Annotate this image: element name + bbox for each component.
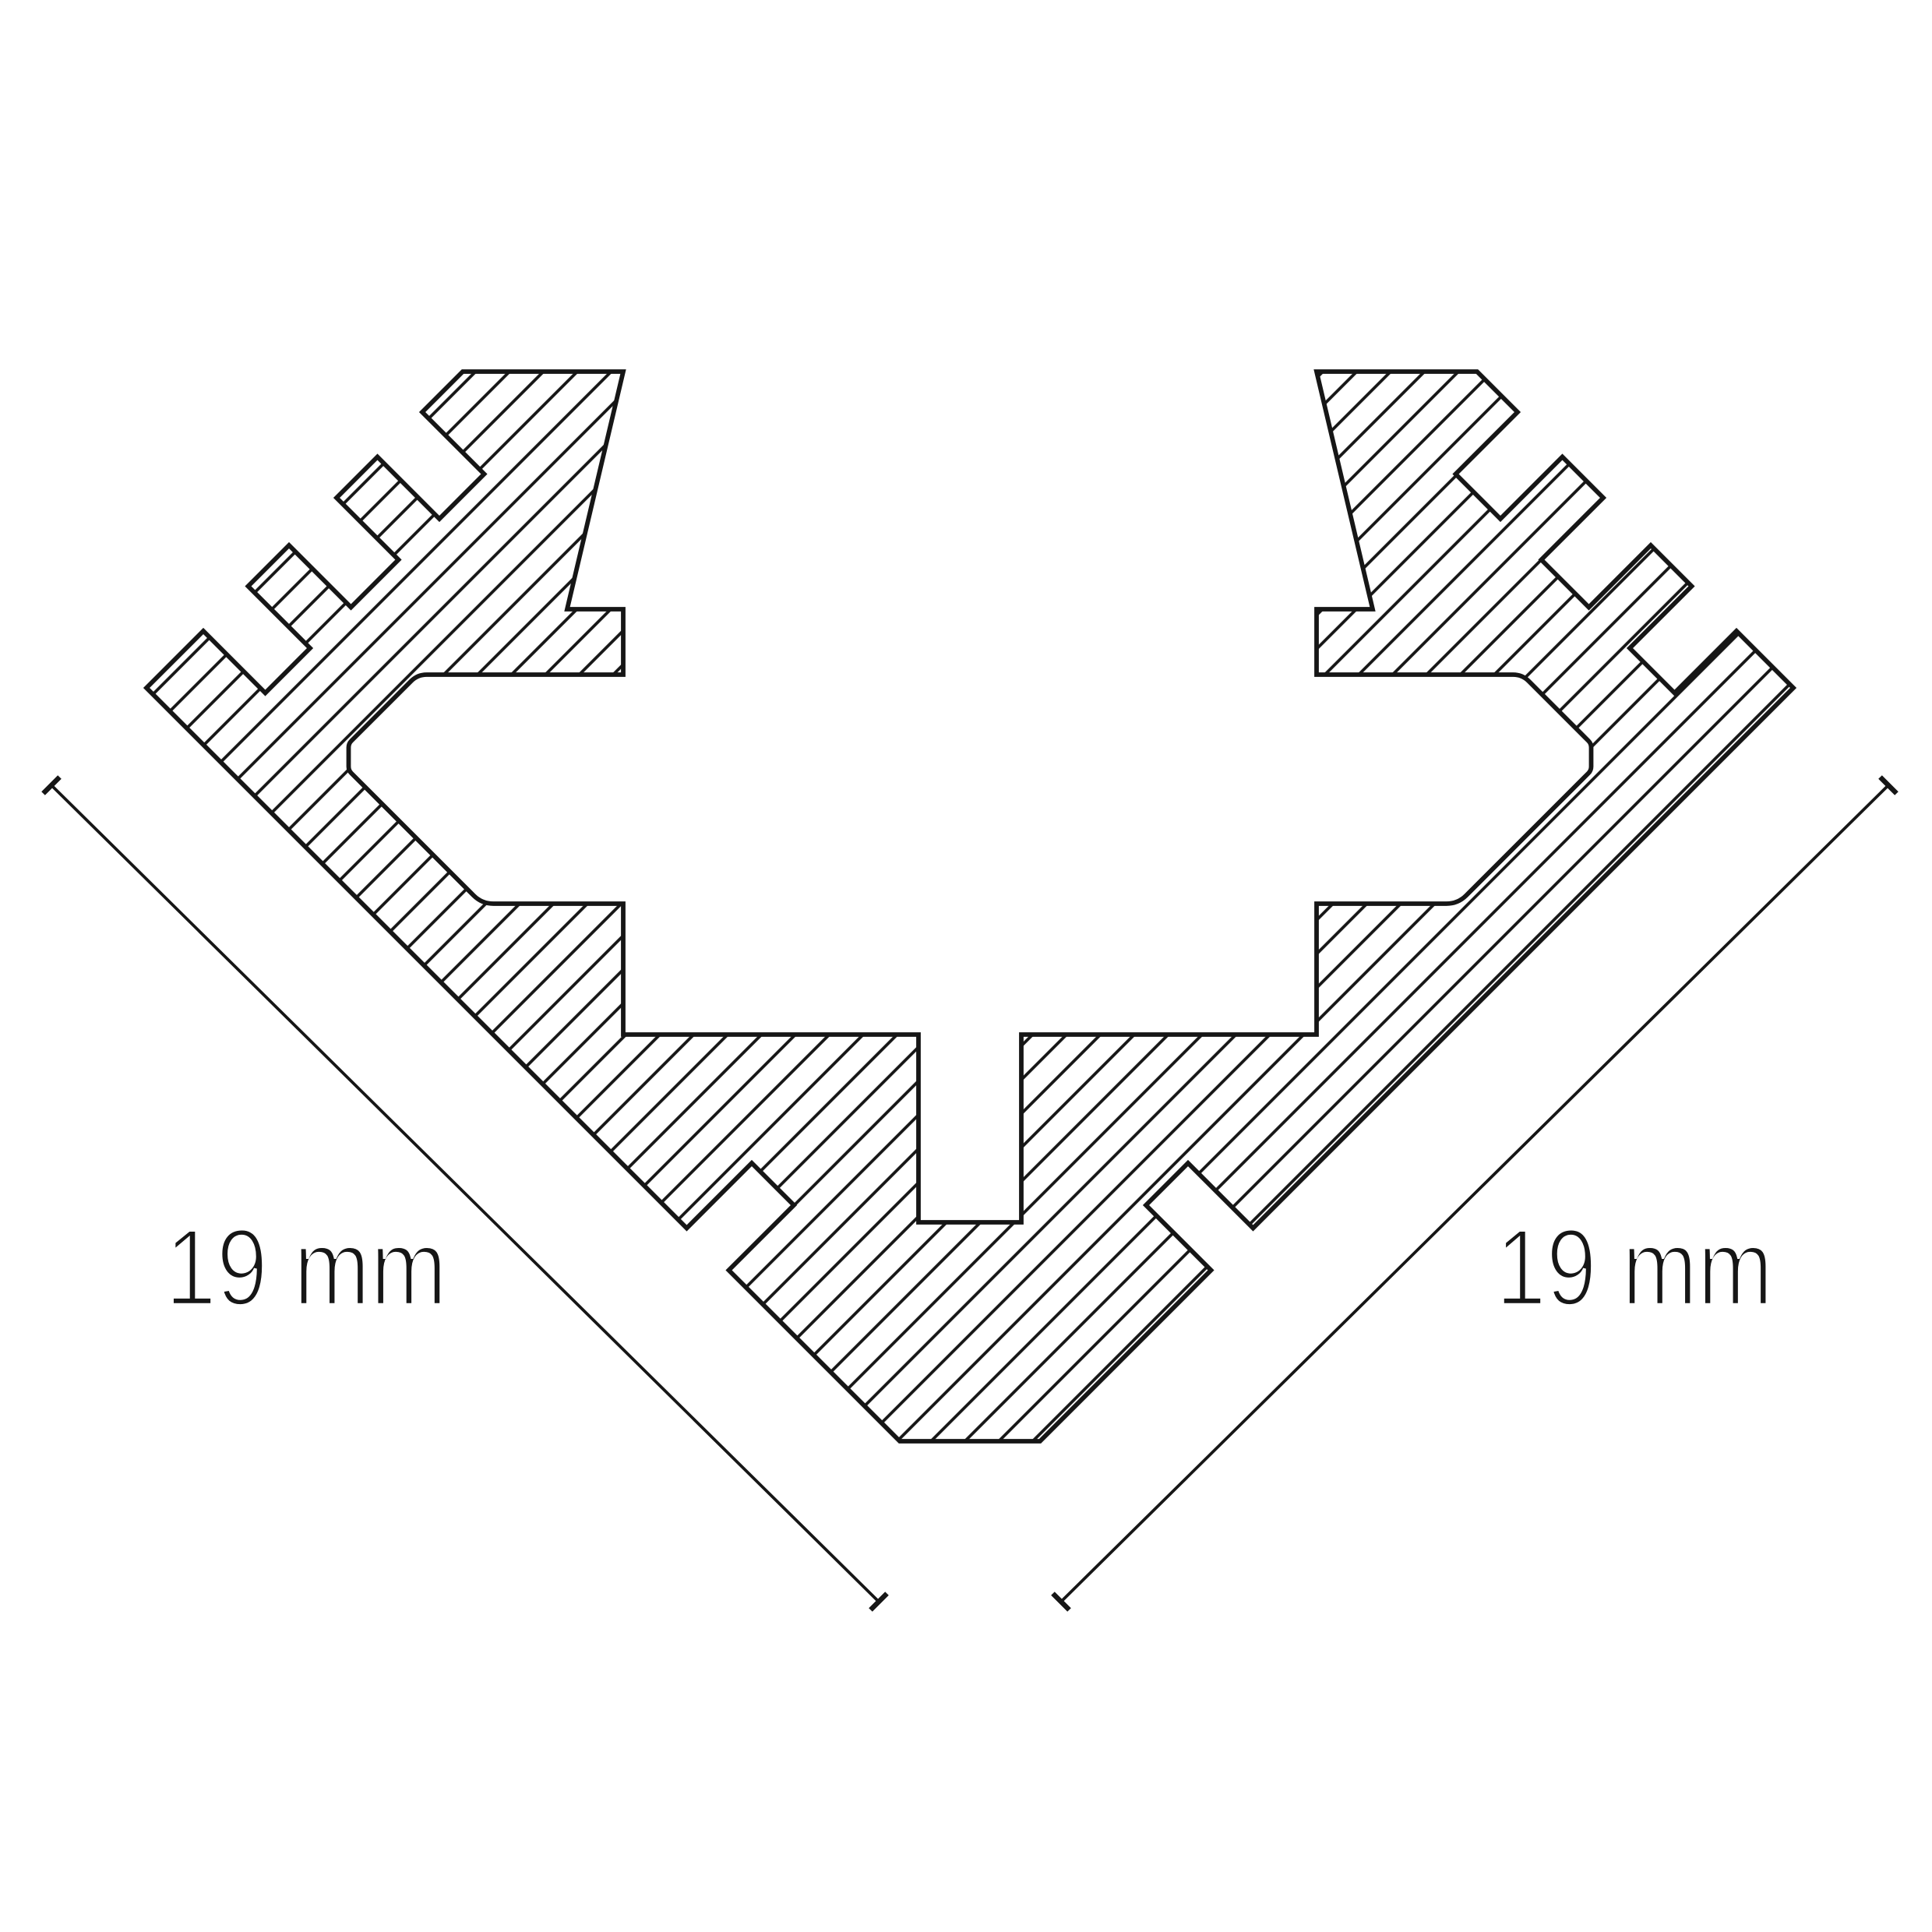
svg-text:19 mm: 19 mm	[1496, 1206, 1773, 1328]
svg-text:19 mm: 19 mm	[165, 1206, 447, 1328]
